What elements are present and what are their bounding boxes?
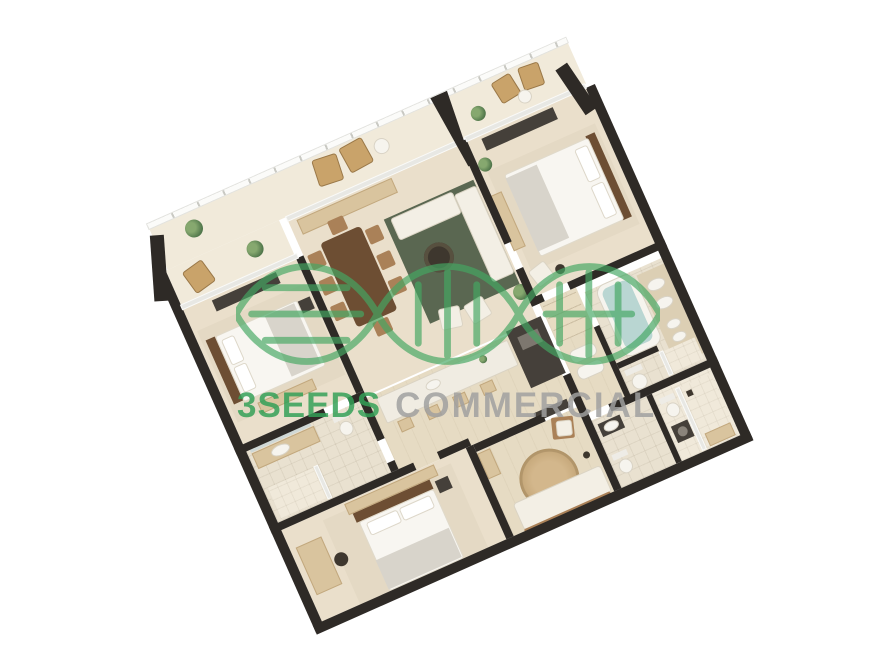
floor-plan — [136, 34, 758, 640]
armchair — [437, 305, 463, 331]
floorplan-render: 3SEEDSCOMMERCIAL — [0, 0, 896, 672]
chair-cushion — [555, 419, 573, 437]
